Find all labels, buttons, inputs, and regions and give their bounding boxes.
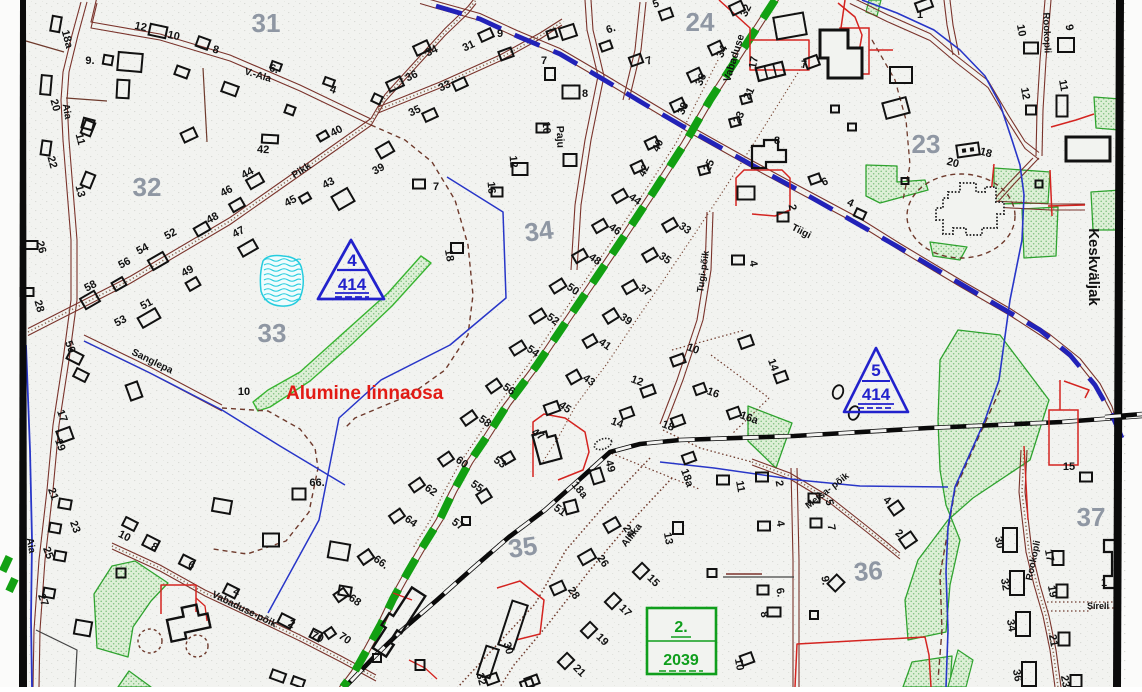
svg-text:10: 10 [238,386,250,398]
svg-text:23: 23 [1058,674,1072,687]
svg-text:35: 35 [506,530,539,564]
svg-text:10: 10 [166,29,180,43]
svg-text:Keskväljak: Keskväljak [1085,228,1102,306]
svg-text:11: 11 [733,480,747,494]
svg-text:10: 10 [539,121,552,134]
svg-text:16: 16 [484,181,497,194]
svg-text:31: 31 [252,8,281,38]
svg-text:12: 12 [1018,86,1032,100]
svg-text:1: 1 [917,9,923,21]
svg-text:9.: 9. [85,55,94,67]
svg-text:Alumine linnaosa: Alumine linnaosa [286,383,444,404]
svg-text:8: 8 [774,135,780,147]
svg-text:19: 19 [1045,584,1059,598]
svg-text:414: 414 [338,275,367,294]
svg-text:24: 24 [686,7,715,37]
svg-text:2039: 2039 [663,652,699,669]
svg-text:10: 10 [732,657,746,671]
svg-text:12: 12 [133,20,147,34]
svg-text:30: 30 [992,535,1006,549]
svg-text:10: 10 [1014,23,1028,37]
svg-text:Paju: Paju [554,126,567,149]
svg-text:34: 34 [523,214,556,247]
svg-text:17: 17 [1042,548,1056,562]
svg-text:Rookopli: Rookopli [1040,12,1052,53]
svg-text:33: 33 [258,318,287,348]
svg-text:5: 5 [871,361,880,380]
svg-text:37: 37 [1077,502,1106,532]
svg-text:7: 7 [433,181,439,193]
svg-text:7: 7 [801,59,807,71]
svg-text:66.: 66. [309,477,324,489]
svg-text:Sireli: Sireli [1087,601,1109,611]
svg-text:4: 4 [347,251,357,270]
svg-text:13: 13 [661,531,675,545]
svg-text:18: 18 [442,248,456,262]
svg-text:1: 1 [1101,577,1107,589]
svg-text:12: 12 [506,155,519,168]
svg-text:32: 32 [998,577,1012,591]
svg-text:7: 7 [541,55,547,67]
svg-text:17: 17 [747,55,761,69]
svg-text:15: 15 [1063,461,1075,473]
svg-text:414: 414 [862,385,891,404]
svg-text:9: 9 [497,28,503,40]
svg-text:36: 36 [1010,668,1024,682]
svg-text:8: 8 [582,88,588,100]
svg-text:21: 21 [1046,633,1060,647]
svg-text:42: 42 [257,144,270,157]
svg-text:11: 11 [1056,79,1070,93]
svg-text:2.: 2. [674,619,687,636]
svg-text:23: 23 [912,129,941,159]
svg-text:36: 36 [853,555,884,587]
svg-text:32: 32 [133,172,162,202]
